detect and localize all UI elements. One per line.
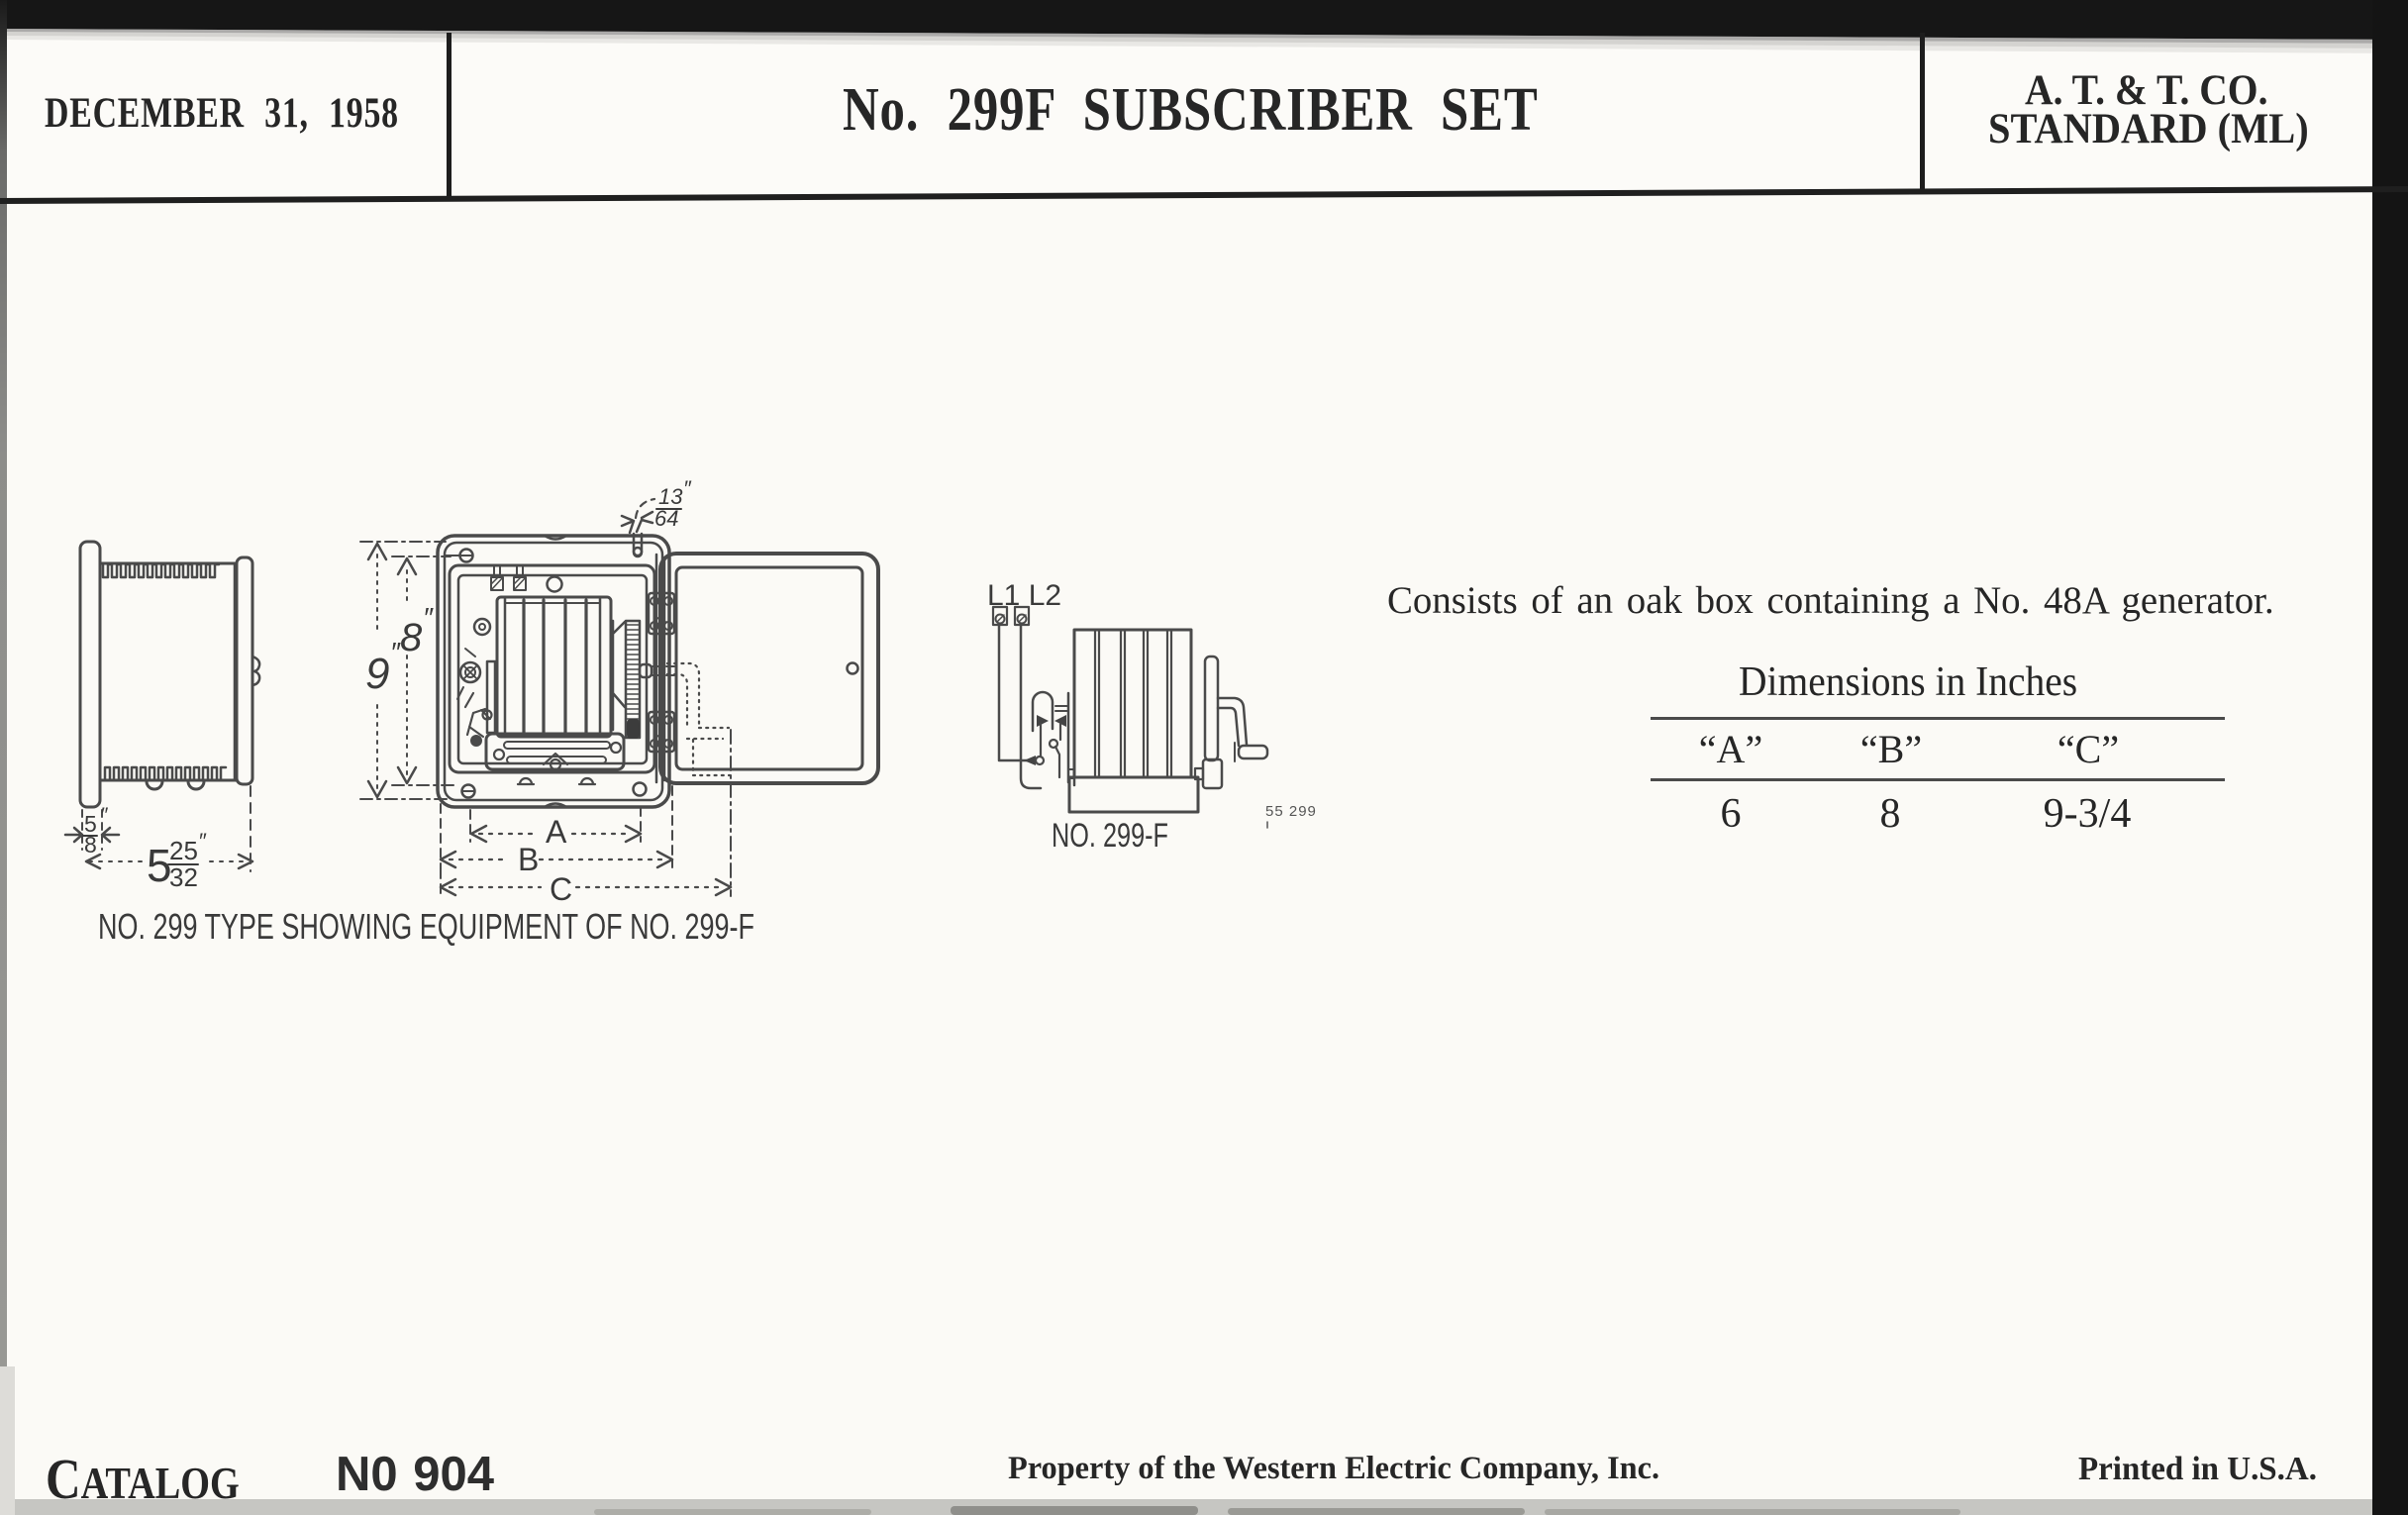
svg-text:″: ″: [423, 602, 434, 633]
svg-text:″: ″: [100, 804, 109, 827]
svg-text:″: ″: [198, 829, 207, 854]
svg-text:8: 8: [400, 616, 423, 659]
svg-text:″: ″: [683, 476, 692, 501]
svg-text:25: 25: [169, 836, 198, 865]
svg-text:5: 5: [147, 840, 172, 891]
svg-text:32: 32: [169, 862, 198, 892]
svg-text:64: 64: [654, 506, 678, 531]
svg-text:B: B: [518, 842, 539, 877]
svg-text:NO. 299 TYPE SHOWING EQUIPMENT: NO. 299 TYPE SHOWING EQUIPMENT OF NO. 29…: [98, 906, 754, 947]
svg-text:A: A: [546, 814, 567, 850]
svg-text:55 299: 55 299: [1265, 803, 1317, 820]
svg-text:NO. 299-F: NO. 299-F: [1052, 817, 1168, 855]
svg-text:9: 9: [365, 650, 389, 698]
svg-text:C: C: [550, 871, 572, 907]
